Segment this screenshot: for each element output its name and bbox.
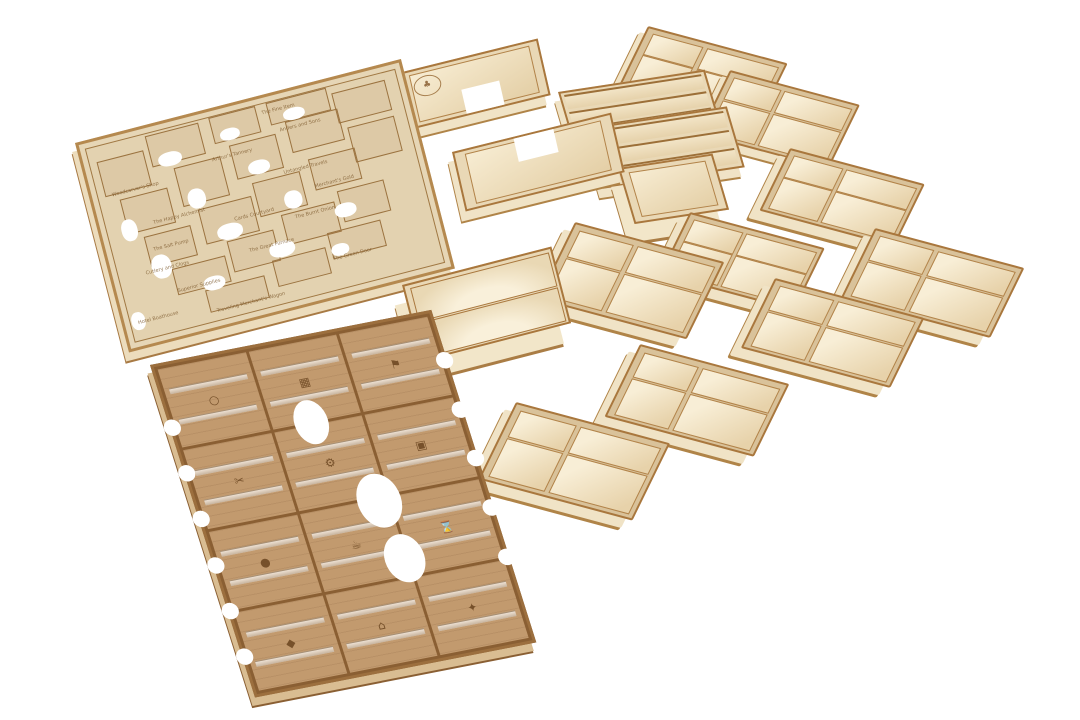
gem-icon: ◆: [284, 635, 297, 650]
mug-icon: ☕: [349, 537, 364, 552]
card-rack-face: ○ ▦ ⚑ ✂ ⚙ ▣ ● ☕ ⌛ ◆ ⌂ ✦: [150, 310, 536, 698]
abacus-icon: ▦: [297, 374, 312, 389]
pouch-icon: ●: [258, 554, 272, 569]
card-rack-board: ○ ▦ ⚑ ✂ ⚙ ▣ ● ☕ ⌛ ◆ ⌂ ✦: [150, 365, 440, 715]
quad-tray: [775, 278, 929, 354]
box-interior: [629, 161, 718, 217]
l-shaped-tray: [452, 152, 616, 214]
hourglass-icon: ⌛: [437, 518, 456, 534]
gear-icon: ⚙: [323, 456, 338, 471]
quad-tray: [730, 70, 864, 140]
frame-icon: ▣: [414, 438, 429, 453]
location-board-face: The Fine Item Anders and Sons Arthur's T…: [75, 59, 455, 353]
house-icon: ⌂: [376, 618, 388, 633]
ring-icon: ○: [207, 392, 221, 407]
product-photo: ♣: [0, 0, 1080, 720]
quad-tray: [516, 402, 675, 486]
quad-tray: [575, 222, 729, 306]
logo-tray-face: ♣: [398, 38, 551, 129]
logo-tray: ♣: [398, 73, 542, 132]
banner-icon: ⚑: [388, 357, 403, 372]
compass-icon: ✦: [465, 600, 479, 615]
quad-tray-face: [478, 402, 670, 521]
shears-icon: ✂: [233, 473, 247, 488]
quad-tray: [790, 148, 929, 216]
